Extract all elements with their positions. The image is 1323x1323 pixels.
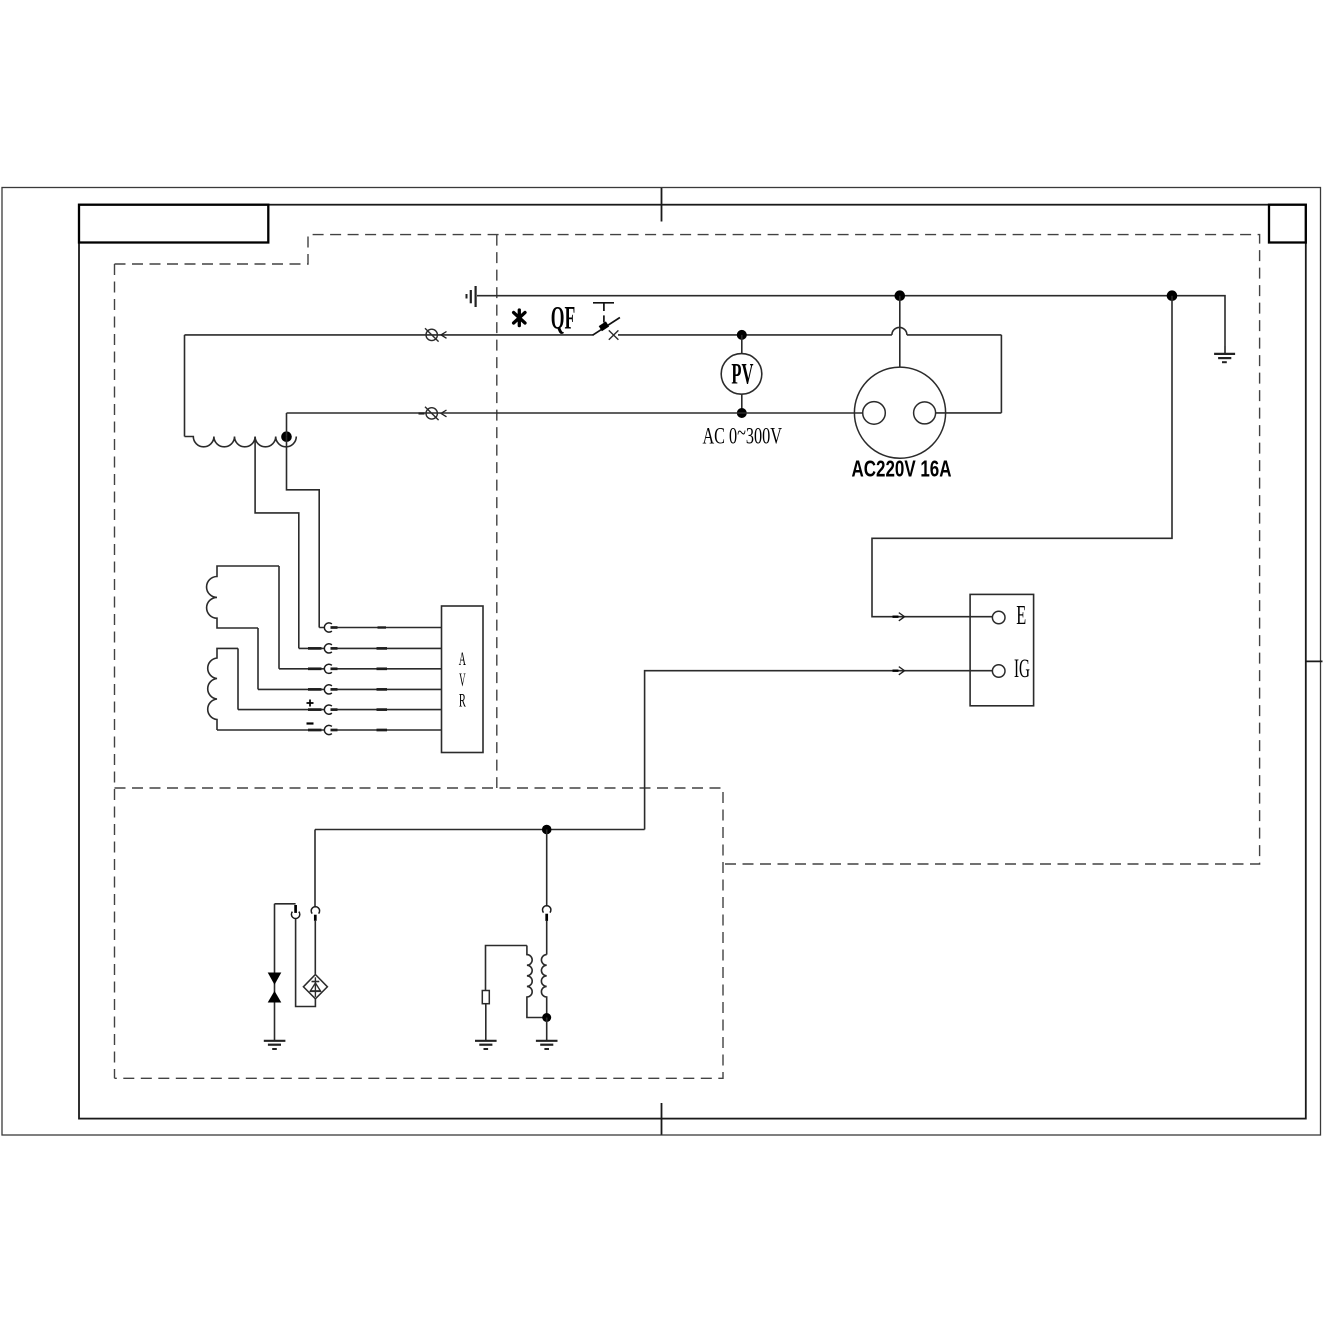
svg-text:PV: PV [731,358,753,391]
svg-text:R: R [459,690,466,711]
svg-text:AC 0~300V: AC 0~300V [702,420,782,449]
svg-text:E: E [1016,600,1026,630]
svg-text:V: V [459,670,466,691]
svg-text:QF: QF [551,300,576,336]
svg-text:A: A [459,649,466,670]
svg-text:IG: IG [1014,653,1030,683]
svg-text:AC220V 16A: AC220V 16A [852,455,952,481]
